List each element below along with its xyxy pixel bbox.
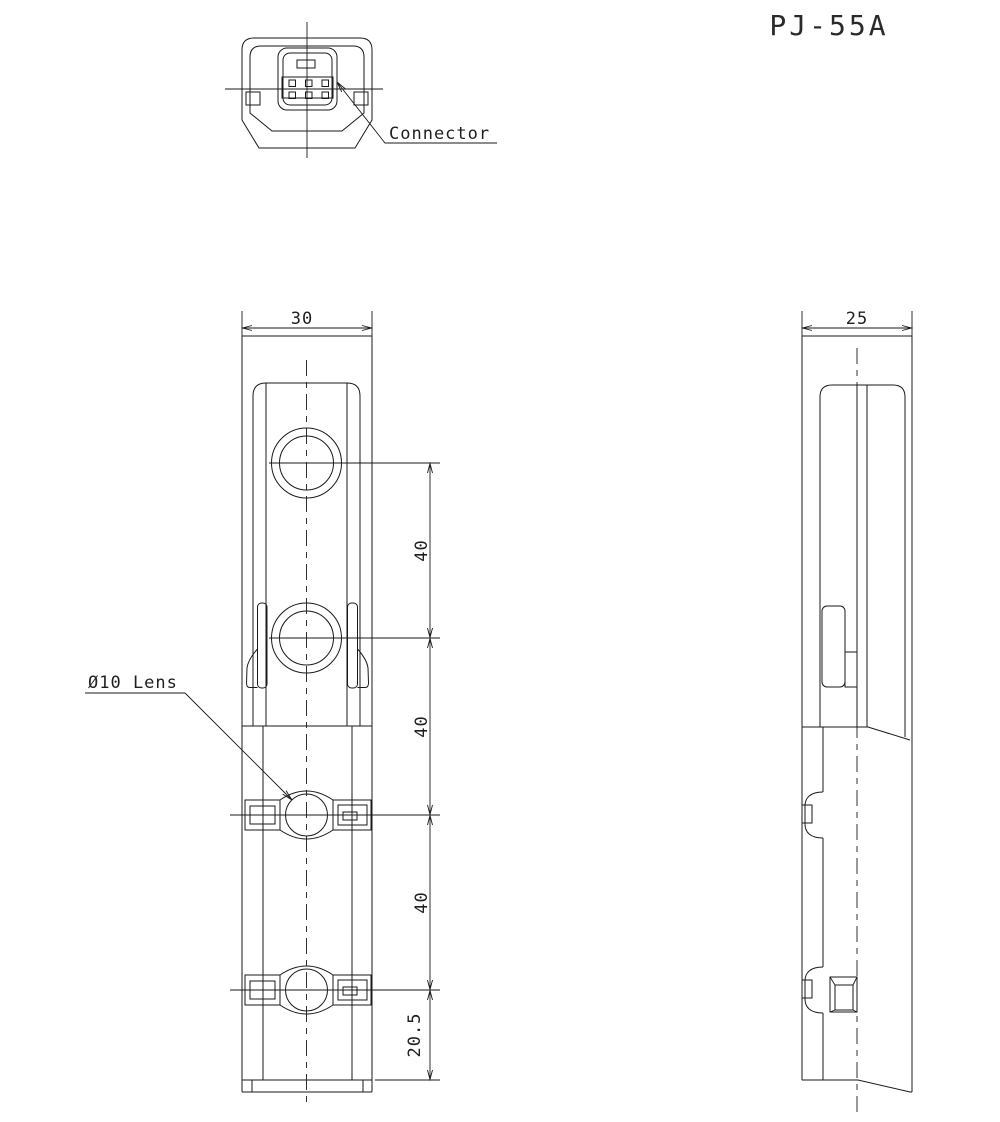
connector-label: Connector [389, 124, 490, 144]
front-dimensions: 30 40 40 40 20.5 [242, 309, 433, 1080]
side-view: 25 [802, 309, 912, 1112]
dim-side-width-text: 25 [846, 309, 868, 329]
side-upper-housing [820, 385, 905, 737]
dim-front-width: 30 [242, 309, 372, 336]
front-view: Ø10 Lens [85, 336, 440, 1104]
dim-pitch-3-text: 40 [412, 891, 432, 913]
lens-label: Ø10 Lens [88, 673, 178, 693]
side-lens-bump-2 [802, 967, 857, 1013]
dim-chain: 40 40 40 20.5 [405, 463, 433, 1080]
receptacle-inner [283, 53, 332, 105]
receptacle-outer [278, 48, 337, 110]
connector-top-view: Connector [225, 22, 497, 158]
part-number-title: PJ-55A [769, 9, 888, 42]
side-clip [822, 606, 857, 687]
dim-pitch-2-text: 40 [412, 715, 432, 737]
cad-drawing: PJ-55A Connector [0, 0, 1000, 1122]
front-center-horizontals [230, 463, 440, 1080]
front-right-clip [348, 603, 369, 688]
dim-bottom-text: 20.5 [405, 1013, 425, 1058]
keying-slot [297, 60, 315, 68]
dim-side-width: 25 [802, 309, 912, 336]
drawing-sheet: PJ-55A Connector [0, 0, 1000, 1122]
front-left-clip [247, 603, 268, 688]
lens-leader [85, 693, 292, 800]
side-lens-bump-1 [802, 792, 823, 838]
dim-front-width-text: 30 [291, 309, 313, 329]
connector-left-ear [246, 92, 260, 105]
connector-right-ear [354, 92, 368, 105]
dim-pitch-1-text: 40 [412, 539, 432, 561]
